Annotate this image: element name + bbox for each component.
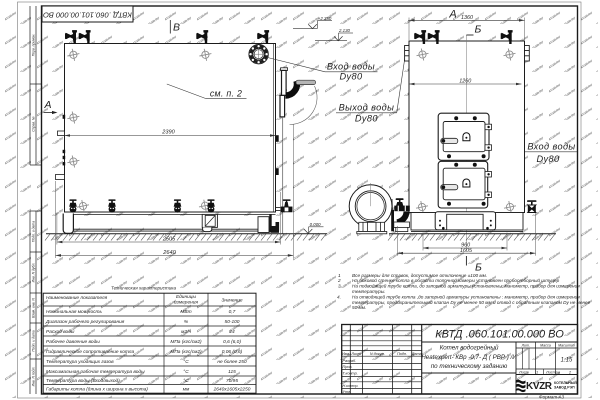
svg-text:4.: 4. — [337, 295, 341, 300]
svg-text:2505: 2505 — [162, 237, 176, 243]
svg-text:Наименование показателя: Наименование показателя — [46, 295, 108, 301]
svg-text:0.000: 0.000 — [310, 222, 322, 227]
svg-text:1260: 1260 — [459, 78, 471, 84]
svg-text:см. п. 2: см. п. 2 — [210, 89, 242, 99]
svg-text:KVZR: KVZR — [526, 381, 553, 392]
svg-text:Номинальная мощность: Номинальная мощность — [46, 309, 103, 315]
svg-text:Перв. примен.: Перв. примен. — [32, 34, 36, 57]
svg-text:А: А — [44, 99, 52, 111]
svg-text:Разраб.: Разраб. — [343, 359, 357, 363]
svg-text:А: А — [448, 9, 456, 21]
svg-text:измерения: измерения — [174, 301, 198, 306]
svg-text:2640х1605х2250: 2640х1605х2250 — [213, 387, 251, 393]
svg-text:На боковой стенке котла в обла: На боковой стенке котла в области топочн… — [352, 277, 560, 283]
svg-text:Листов: Листов — [545, 370, 560, 374]
svg-text:Подп. и дата: Подп. и дата — [32, 221, 36, 242]
svg-text:Лист: Лист — [518, 370, 529, 374]
svg-text:0,06 (0,6): 0,06 (0,6) — [222, 349, 243, 355]
svg-text:0,7: 0,7 — [229, 309, 236, 315]
svg-text:Вход воды: Вход воды — [327, 62, 375, 72]
svg-text:%: % — [184, 319, 189, 325]
svg-text:Справ. №: Справ. № — [32, 116, 36, 132]
svg-text:На подводящей трубе котла, д: На подводящей трубе котла, до запорной а… — [352, 283, 580, 289]
svg-text:Температура воды (Вход/выход): Температура воды (Вход/выход) — [46, 378, 120, 384]
svg-text:Dy80: Dy80 — [536, 154, 560, 164]
svg-text:Н.контр.: Н.контр. — [343, 384, 359, 388]
svg-text:Изм.: Изм. — [342, 352, 350, 356]
svg-text:24: 24 — [228, 329, 235, 335]
svg-text:Рабочее давление воды: Рабочее давление воды — [46, 339, 100, 345]
svg-text:Котел водогрейный: Котел водогрейный — [440, 345, 499, 352]
svg-text:Габариты котла (длина х ширина: Габариты котла (длина х ширина х высота) — [46, 387, 148, 393]
svg-text:1:15: 1:15 — [561, 358, 573, 364]
svg-text:2640: 2640 — [162, 250, 176, 256]
svg-text:N докум.: N докум. — [370, 352, 385, 356]
svg-text:Б: Б — [475, 261, 482, 273]
svg-text:1360: 1360 — [461, 15, 473, 21]
svg-text:В: В — [173, 22, 180, 34]
svg-text:Взам. инв. N: Взам. инв. N — [32, 298, 36, 318]
svg-text:Подп.: Подп. — [397, 352, 407, 356]
svg-text:Значение: Значение — [221, 298, 242, 304]
svg-text:МВт: МВт — [180, 309, 191, 315]
svg-text:Техническая характеристика: Техническая характеристика — [111, 285, 176, 290]
svg-text:На отводящей трубе котла ,до з: На отводящей трубе котла ,до запорной ар… — [352, 294, 580, 300]
svg-text:1605: 1605 — [460, 248, 473, 254]
svg-text:70/95: 70/95 — [226, 378, 238, 384]
svg-text:Утв.: Утв. — [343, 390, 352, 394]
svg-text:Dy80: Dy80 — [355, 114, 379, 124]
svg-text:мм: мм — [183, 388, 190, 393]
svg-text:Инв. N подл.: Инв. N подл. — [32, 367, 36, 387]
svg-text:3: 3 — [338, 284, 341, 289]
svg-text:м3/ч: м3/ч — [181, 329, 191, 335]
svg-text:Вход воды: Вход воды — [527, 142, 575, 152]
svg-text:Все размеры для справок, допус: Все размеры для справок, допустимое откл… — [352, 273, 487, 278]
svg-text:Расход воды: Расход воды — [46, 329, 75, 335]
svg-text:Б: Б — [475, 24, 482, 36]
svg-text:Т.контр.: Т.контр. — [343, 372, 358, 376]
svg-text:Диапазон рабочего регулировани: Диапазон рабочего регулирования — [45, 319, 125, 325]
svg-text:2390: 2390 — [161, 130, 175, 136]
svg-text:температуры.: температуры. — [352, 289, 386, 294]
svg-text:Лит.: Лит. — [521, 344, 530, 348]
svg-text:°С: °С — [183, 378, 189, 384]
svg-text:по техническому заданию: по техническому заданию — [431, 363, 508, 370]
svg-text:50-100: 50-100 — [225, 319, 240, 325]
svg-text:50 мм.: 50 мм. — [352, 305, 366, 310]
svg-text:МПа (кгс/см2): МПа (кгс/см2) — [170, 349, 202, 355]
svg-text:температуры, предохранительный: температуры, предохранительный клапан Dу… — [352, 299, 591, 305]
svg-text:Максимальная рабочая температу: Максимальная рабочая температура воды — [46, 369, 145, 375]
svg-text:Гидравлическое сопротивление к: Гидравлическое сопротивление котла — [46, 349, 134, 355]
svg-text:Дата: Дата — [411, 352, 422, 356]
svg-text:Выход воды: Выход воды — [339, 103, 395, 113]
svg-text:не более 250: не более 250 — [217, 359, 247, 365]
svg-text:Подп. и дата: Подп. и дата — [32, 330, 36, 351]
svg-text:Лист: Лист — [350, 352, 361, 356]
svg-text:КВТД .060.101.00.000 ВО: КВТД .060.101.00.000 ВО — [43, 10, 132, 19]
svg-text:Dy80: Dy80 — [339, 72, 363, 82]
svg-text:°С: °С — [183, 359, 189, 365]
svg-text:2: 2 — [337, 278, 341, 283]
svg-text:Температура уходящих газов: Температура уходящих газов — [46, 359, 114, 365]
svg-text:Пров.: Пров. — [343, 365, 353, 369]
svg-text:+2.250: +2.250 — [318, 16, 332, 21]
svg-text:МПа (кгс/см2): МПа (кгс/см2) — [170, 339, 202, 345]
svg-text:Масштаб: Масштаб — [558, 344, 576, 348]
svg-text:2.130: 2.130 — [338, 28, 351, 33]
svg-text:115: 115 — [228, 369, 236, 375]
svg-text:КОТЕЛЬНЫЙ: КОТЕЛЬНЫЙ — [554, 381, 577, 385]
svg-text:1: 1 — [536, 370, 538, 374]
svg-text:Heatexpert- КВр -0,7- Д ( РВР: Heatexpert- КВр -0,7- Д ( РВР ) /И — [421, 354, 517, 361]
svg-text:°С: °С — [183, 369, 189, 375]
svg-text:0,6 (6,0): 0,6 (6,0) — [223, 339, 241, 345]
svg-text:ЗАВОД РЭП: ЗАВОД РЭП — [554, 386, 575, 390]
svg-text:Масса: Масса — [540, 344, 551, 348]
svg-text:Единицы: Единицы — [176, 294, 197, 300]
svg-text:Формат А3: Формат А3 — [539, 394, 565, 399]
svg-text:КВТД .060.101.00.000 ВО: КВТД .060.101.00.000 ВО — [435, 329, 564, 341]
svg-text:1: 1 — [338, 273, 341, 278]
svg-text:Инв. N дубл.: Инв. N дубл. — [32, 263, 36, 283]
